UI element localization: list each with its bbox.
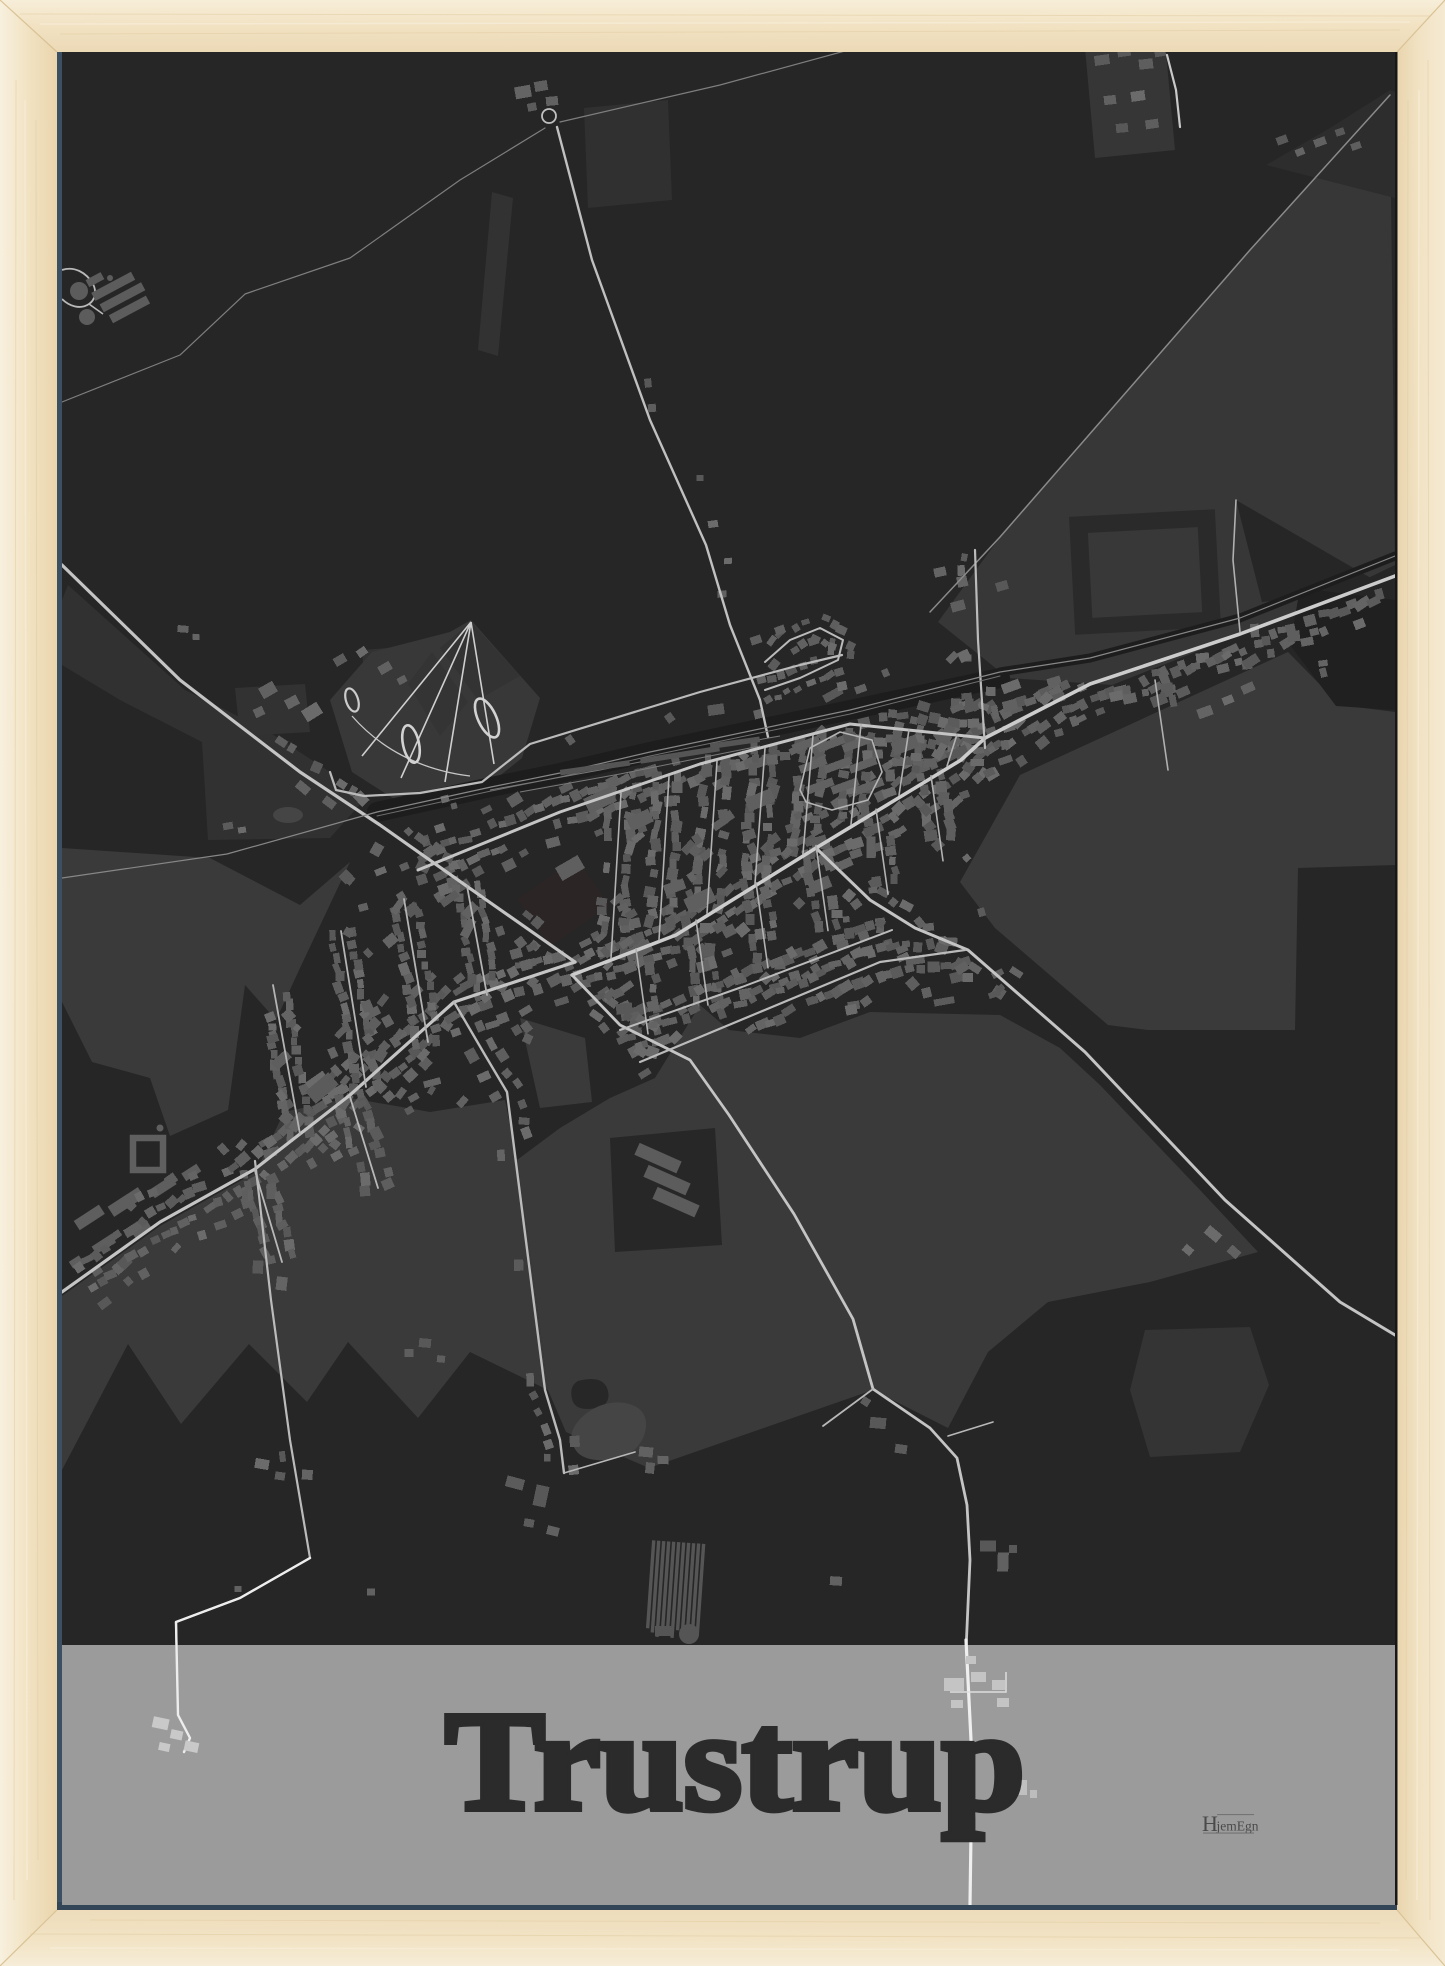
svg-text:Trustrup: Trustrup xyxy=(445,1682,1025,1840)
svg-text:jemEgn: jemEgn xyxy=(1216,1819,1259,1834)
